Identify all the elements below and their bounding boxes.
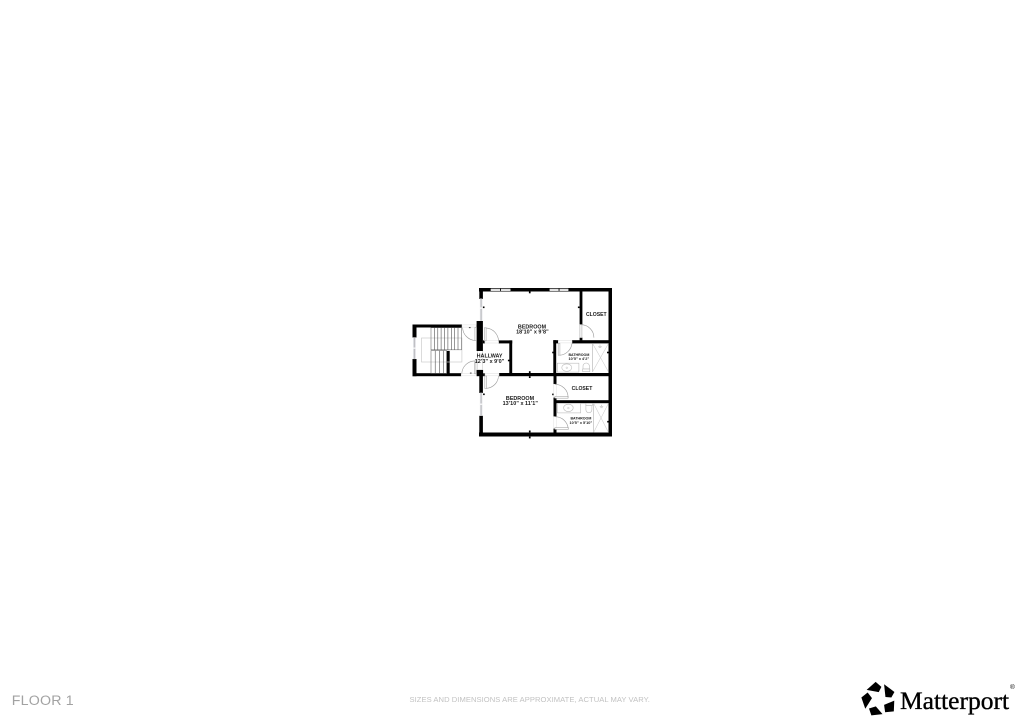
- svg-text:CLOSET: CLOSET: [586, 312, 608, 318]
- svg-text:18’10” x 9’8”: 18’10” x 9’8”: [516, 330, 549, 336]
- svg-text:10’5” x 5’10”: 10’5” x 5’10”: [569, 421, 592, 425]
- svg-text:13’10” x 11’1”: 13’10” x 11’1”: [503, 401, 539, 407]
- svg-text:CLOSET: CLOSET: [572, 386, 594, 392]
- svg-text:10’5” x 4’2”: 10’5” x 4’2”: [569, 357, 590, 361]
- svg-text:12’3” x 9’0”: 12’3” x 9’0”: [475, 359, 505, 365]
